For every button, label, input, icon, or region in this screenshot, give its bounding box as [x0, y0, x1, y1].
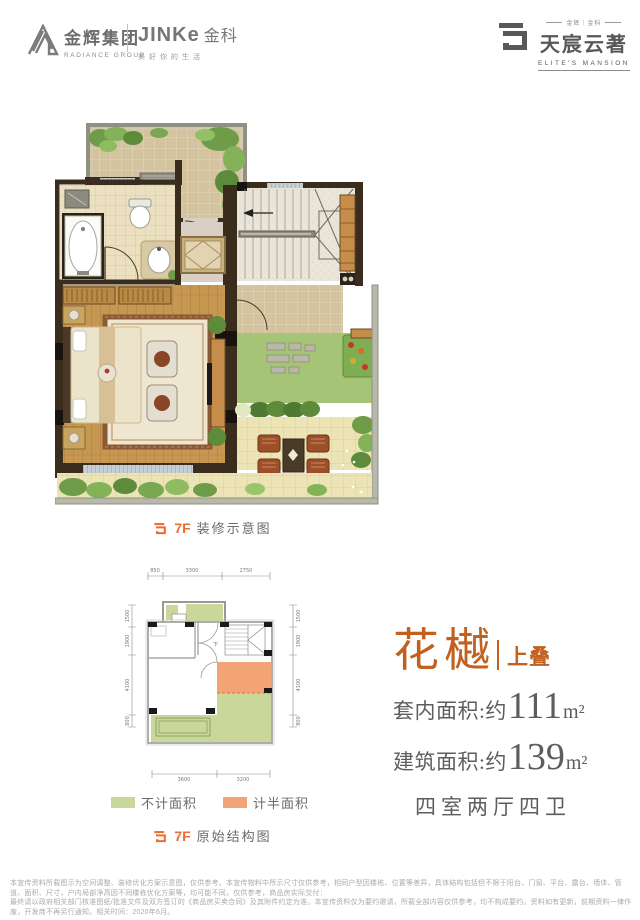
brand-sub-label: 金辉｜金科	[546, 18, 621, 27]
staircase	[237, 182, 363, 286]
disclaimer-text: 本宣传资料所载图示为空间调整、装修优化方案示意图，仅供参考。本宣传物料中所示尺寸…	[10, 879, 632, 917]
jinke-logo: JINKe 金科 美好你的生活	[138, 22, 238, 62]
garden-bench	[351, 329, 373, 338]
bathroom	[57, 182, 178, 282]
garden-courtyard	[235, 285, 378, 503]
pillow	[73, 399, 86, 419]
bed	[63, 327, 141, 423]
svg-text:1900: 1900	[125, 635, 131, 648]
unit-tier: 上叠	[507, 641, 551, 671]
name-divider	[497, 640, 499, 670]
bathtub	[62, 213, 104, 279]
svg-text:800: 800	[296, 716, 302, 726]
svg-text:850: 850	[150, 568, 160, 574]
tianchen-brand-logo: 金辉｜金科 天宸云著 ELITE'S MANSION	[497, 18, 630, 71]
svg-text:2750: 2750	[240, 568, 253, 574]
disclaimer-line-2: 最终请以政府相关部门核准图纸/批准文件及双方签订的《商品房买卖合同》及其附件约定…	[10, 898, 632, 917]
radiance-logo-text: 金辉集团 RADIANCE GROUP	[64, 24, 146, 59]
legend-item-half: 计半面积	[223, 793, 309, 812]
master-bedroom	[55, 282, 237, 478]
unit-info: 花樾 上叠 套内面积:约 111 m² 建筑面积:约 139 m² 四室两厅四卫	[393, 628, 628, 821]
bottom-garden-strip	[55, 473, 378, 504]
cloud-logo-icon-orange	[153, 521, 168, 535]
decor-plan-caption: 7F 装修示意图	[140, 518, 285, 537]
brand-name-cn: 天宸云著	[540, 28, 628, 57]
half-area-zone	[217, 662, 271, 693]
inner-area-value: 111	[508, 687, 562, 725]
toilet	[129, 199, 151, 228]
inner-area-row: 套内面积:约 111 m²	[393, 687, 628, 725]
brand-name-en: ELITE'S MANSION	[538, 60, 630, 71]
decorated-floor-plan	[55, 115, 380, 510]
hedge-row	[235, 401, 320, 418]
brochure-page: 金辉集团 RADIANCE GROUP JINKe 金科 美好你的生活 金辉｜金…	[0, 0, 640, 920]
structure-plan-caption: 7F 原始结构图	[140, 826, 285, 845]
svg-text:800: 800	[125, 716, 131, 726]
svg-text:1500: 1500	[296, 610, 302, 623]
cloud-logo-icon-orange	[153, 829, 168, 843]
gross-area-row: 建筑面积:约 139 m²	[393, 738, 628, 776]
legend-swatch-orange	[223, 797, 247, 808]
vanity-sink	[141, 241, 178, 280]
header-divider	[127, 24, 128, 52]
unit-name: 花樾	[393, 628, 495, 674]
svg-text:3200: 3200	[237, 777, 250, 783]
excluded-area-zone	[217, 693, 271, 742]
cloud-logo-icon	[497, 18, 531, 52]
stair-window	[267, 183, 303, 188]
legend-item-excluded: 不计面积	[111, 793, 197, 812]
room-configuration: 四室两厅四卫	[393, 791, 593, 821]
svg-text:1500: 1500	[125, 610, 131, 623]
bedroom-window	[83, 465, 193, 473]
radiance-name-en: RADIANCE GROUP	[64, 52, 146, 59]
structure-legend: 不计面积 计半面积	[0, 793, 420, 812]
jinke-slogan: 美好你的生活	[138, 52, 238, 62]
structure-diagram: 850 3300 2750 1500 1900 4100 800 1500 19…	[120, 558, 305, 798]
svg-text:4100: 4100	[125, 679, 131, 692]
disclaimer-line-1: 本宣传资料所载图示为空间调整、装修优化方案示意图，仅供参考。本宣传物料中所示尺寸…	[10, 879, 632, 898]
decor-plan-floor: 7F	[174, 520, 190, 536]
svg-text:3600: 3600	[178, 777, 191, 783]
entry-rug	[181, 237, 225, 273]
gross-area-value: 139	[508, 738, 565, 776]
svg-text:1900: 1900	[296, 635, 302, 648]
jinke-name-en: JINKe	[138, 24, 200, 47]
jinke-name-cn: 金科	[204, 22, 238, 46]
svg-text:4100: 4100	[296, 679, 302, 692]
svg-text:3300: 3300	[186, 568, 199, 574]
structure-plan-label: 原始结构图	[197, 826, 272, 845]
stair-cabinet	[340, 195, 355, 271]
garden-wall-right	[372, 285, 378, 503]
radiance-name-cn: 金辉集团	[64, 24, 146, 49]
decor-plan-label: 装修示意图	[197, 518, 272, 537]
radiance-logo-icon	[25, 21, 61, 63]
svg-text:下: 下	[213, 642, 218, 648]
legend-swatch-green	[111, 797, 135, 808]
structure-plan-floor: 7F	[174, 828, 190, 844]
flower-bed	[343, 335, 373, 377]
pillow	[73, 331, 86, 351]
structure-plan-body: 下	[146, 602, 274, 745]
